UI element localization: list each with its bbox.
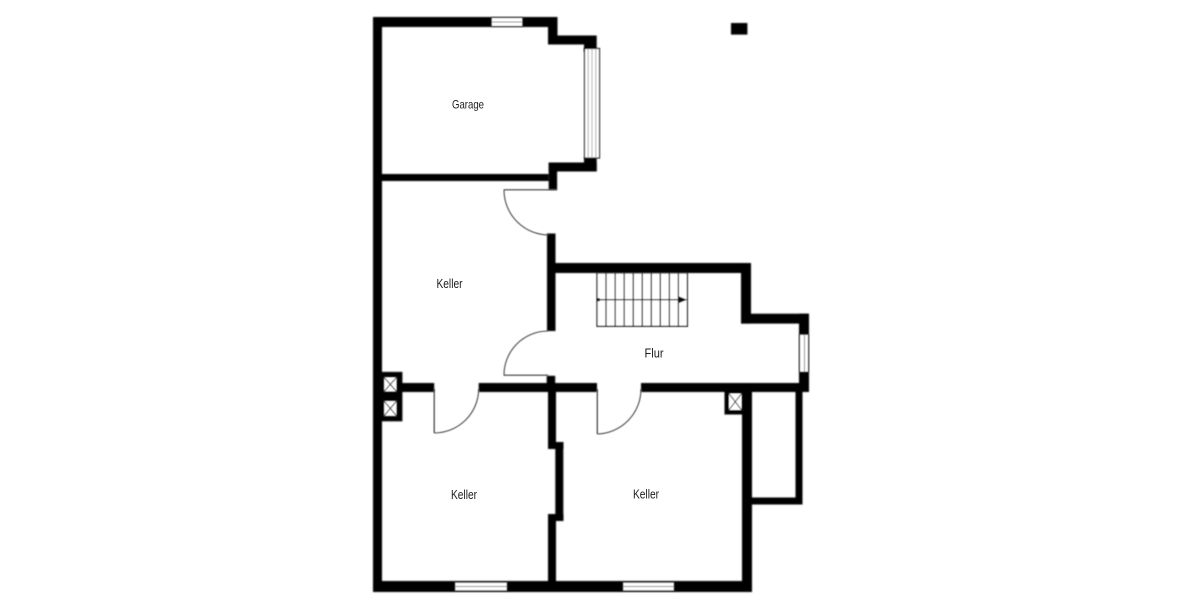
svg-text:Garage: Garage: [452, 98, 484, 112]
svg-text:Keller: Keller: [633, 488, 659, 502]
svg-text:Keller: Keller: [451, 488, 477, 502]
svg-text:Keller: Keller: [437, 277, 463, 291]
svg-text:Flur: Flur: [645, 347, 664, 361]
